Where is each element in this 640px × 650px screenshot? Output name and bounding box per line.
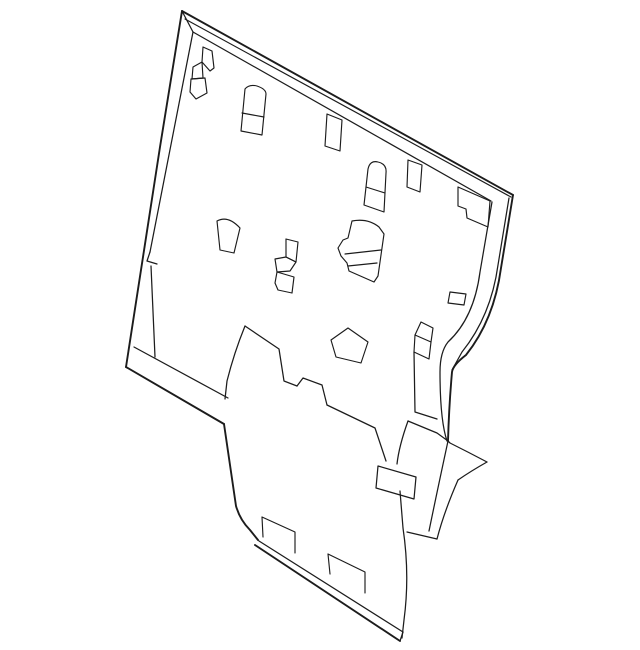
bracket-large-outline [338, 220, 384, 282]
wing-tail-outer [437, 480, 458, 539]
wedge-cutout [217, 219, 240, 253]
bottom-edge-outer [126, 367, 224, 424]
diagram-canvas [0, 0, 640, 650]
fold-diagonal [327, 405, 386, 461]
tongue-right-edge-upper [397, 421, 408, 464]
strap-slot-right-divider [366, 187, 385, 193]
bottom-flap-right [328, 554, 365, 593]
handle-slot [376, 466, 416, 499]
bracket-large-crease-1 [345, 250, 381, 254]
pentagon-cutout [331, 328, 368, 363]
panel-line-art [0, 0, 640, 650]
bottom-face-line [134, 347, 228, 398]
left-face-line-lower [151, 266, 155, 357]
edge-bracket [458, 187, 490, 227]
wing-tail-inner [429, 441, 448, 531]
slot-top-center [325, 114, 342, 151]
clip-a-bottom [190, 78, 207, 99]
fold-tab [297, 378, 327, 405]
seam-step-line [414, 352, 437, 419]
slot-lower-right [448, 292, 466, 305]
clip-a-mid [192, 62, 203, 79]
clip-b-bottom [275, 272, 294, 293]
tongue-bottom-inner [259, 541, 403, 632]
tongue-left-edge [224, 424, 258, 540]
top-edge-outer [182, 11, 513, 195]
tongue-right-edge-lower [400, 491, 407, 638]
right-face-line [440, 202, 492, 441]
fold-top-line [245, 326, 297, 386]
tongue-bottom-outer [255, 545, 400, 641]
slot-upper-right [407, 160, 422, 192]
fold-left-line [225, 326, 245, 399]
box-bracket-top [415, 322, 433, 342]
bottom-flap-left [262, 517, 295, 553]
strap-slot-left-divider [242, 113, 264, 117]
clip-b-top [286, 239, 298, 262]
clip-b-mid [275, 257, 296, 272]
left-edge-outer [126, 11, 182, 367]
wing-tip-return [458, 462, 487, 480]
left-face-notch [147, 252, 157, 264]
wing-top-edge [448, 441, 487, 462]
top-edge-second-line [185, 19, 511, 197]
left-face-line-upper [150, 32, 193, 252]
seam-diagonal [408, 421, 448, 441]
top-face-line [193, 32, 491, 201]
wing-tail-bottom [407, 532, 437, 539]
strap-slot-left [241, 85, 266, 135]
bracket-large-crease-2 [348, 263, 377, 266]
clip-a-top [202, 47, 214, 71]
